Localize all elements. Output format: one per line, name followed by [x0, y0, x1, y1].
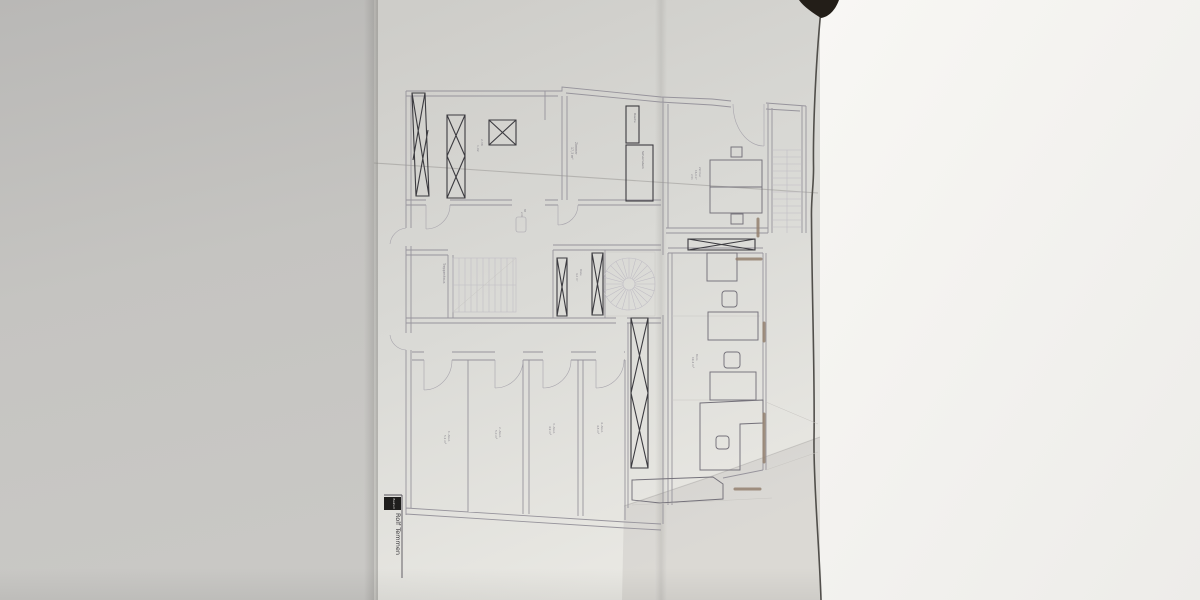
room-label: 4,8 m² [596, 425, 600, 434]
room-label: 4,2 m² [575, 273, 579, 282]
title-block-header: Bauherr [392, 499, 396, 510]
room-label: 4,9 m² [548, 426, 552, 435]
room-label: 16,9 m² [694, 170, 698, 180]
room-label: 5,0 m² [494, 430, 498, 439]
paper-fold-shadow-left [364, 0, 378, 600]
room-label: Diele [579, 269, 583, 276]
room-label: Zimmer [698, 167, 702, 178]
duct-label: Schornstein [641, 151, 645, 169]
room-label: 19,4 m² [691, 357, 695, 368]
dim-label: 1,02 [476, 145, 480, 152]
bottom-vignette [0, 568, 822, 600]
backdrop-left [0, 0, 378, 600]
duct-label: Dusche [633, 113, 637, 123]
room-label: 17,3 m² [570, 147, 574, 160]
dim-label: 2,01 [520, 212, 523, 218]
room-label: Treppenhaus [442, 262, 446, 284]
title-block-name: Rolf Temmen [394, 513, 402, 555]
photographed-floor-plan: 2,38 1,02 Zimmer 17,3 m² Dusche Schornst… [0, 0, 1200, 600]
room-label: 5,1 m² [443, 435, 447, 444]
room-label: 2,51 [690, 174, 694, 180]
floor-plan-photo: 2,38 1,02 Zimmer 17,3 m² Dusche Schornst… [0, 0, 1200, 600]
surface-right [820, 0, 1200, 600]
